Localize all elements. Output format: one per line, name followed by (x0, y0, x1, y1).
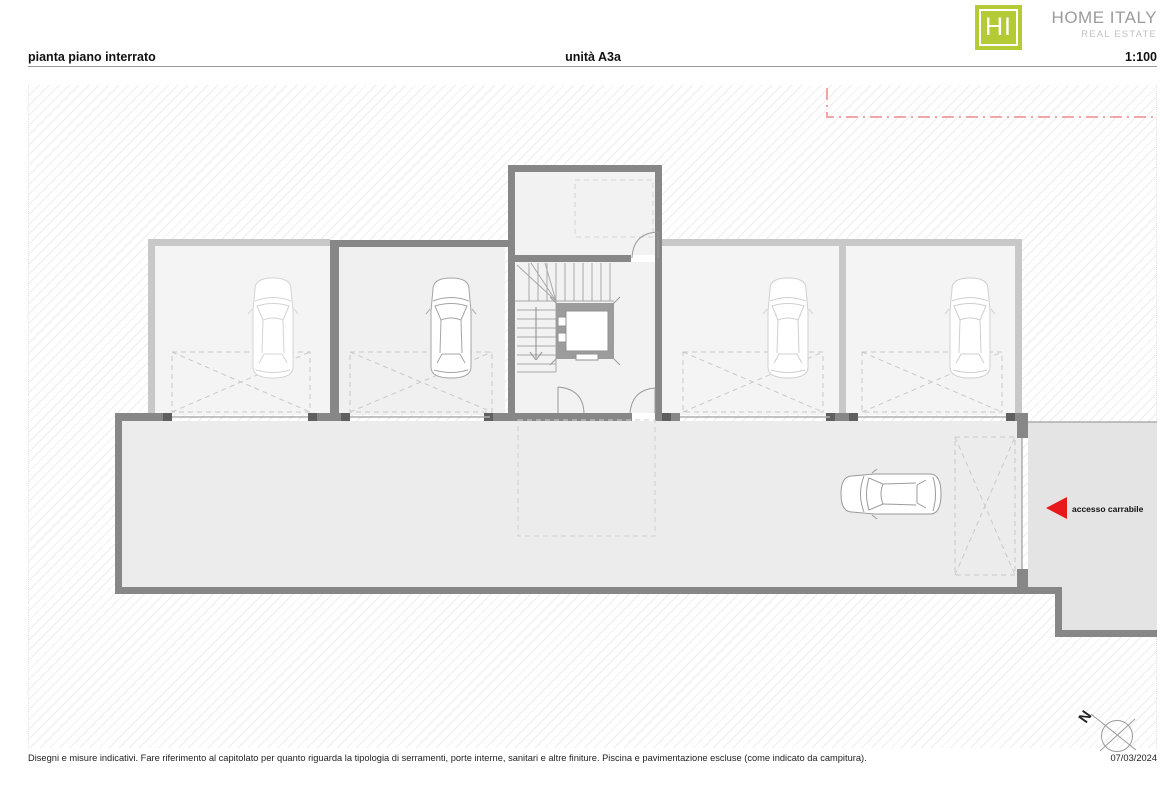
elevator-door-jamb (558, 317, 566, 326)
garage-2-floor (339, 247, 505, 415)
elevator-door-jamb (558, 333, 566, 342)
garage-3-floor (662, 246, 839, 415)
car-icon-garage-1 (248, 278, 298, 378)
elevator (550, 297, 620, 365)
access-label: accesso carrabile (1072, 504, 1144, 514)
ramp-floor (1028, 422, 1157, 630)
car-icon-garage-2 (426, 278, 476, 378)
floor-plan-canvas: accesso carrabile N (0, 0, 1160, 810)
car-icon-garage-3 (763, 278, 813, 378)
elevator-door (576, 354, 598, 360)
north-label: N (1075, 708, 1095, 727)
plan-sheet-page: HI HOME ITALY REAL ESTATE pianta piano i… (0, 0, 1160, 810)
unit-boundary-line (827, 88, 1157, 117)
garage-1-floor (155, 246, 330, 415)
footer-disclaimer: Disegni e misure indicativi. Fare riferi… (28, 753, 867, 763)
footer-date: 07/03/2024 (1110, 753, 1157, 763)
car-icon-garage-4 (945, 278, 995, 378)
north-compass: N (1075, 708, 1136, 752)
car-icon-driveway (841, 469, 941, 519)
